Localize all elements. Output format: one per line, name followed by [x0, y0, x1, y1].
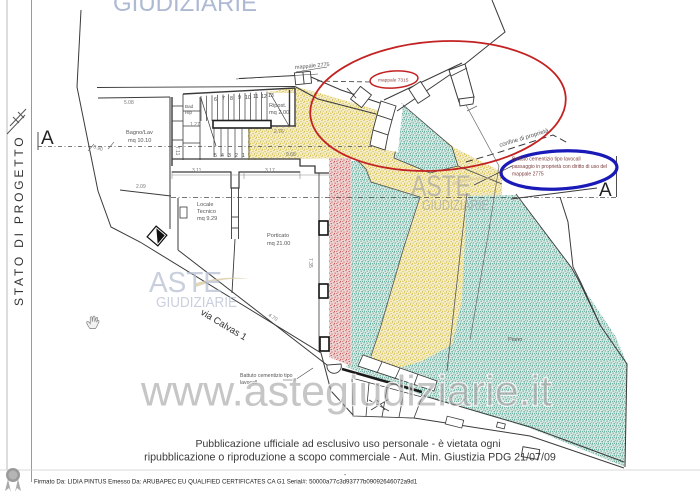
svg-text:Bagno/Lav: Bagno/Lav: [126, 130, 153, 136]
svg-text:Piano: Piano: [508, 337, 522, 343]
svg-text:1: 1: [242, 153, 245, 159]
svg-text:Rip: Rip: [185, 110, 192, 115]
svg-text:Firmato Da: LIDIA PINTUS Emess: Firmato Da: LIDIA PINTUS Emesso Da: ARUB…: [34, 479, 418, 486]
svg-text:mappale 2775: mappale 2775: [512, 172, 544, 178]
svg-text:3.17: 3.17: [265, 168, 275, 174]
svg-text:12: 12: [261, 94, 267, 100]
svg-text:Locale: Locale: [197, 202, 213, 208]
svg-text:9.68: 9.68: [286, 152, 296, 158]
svg-text:www.astegiudiziarie.it: www.astegiudiziarie.it: [140, 368, 552, 416]
svg-text:Bad: Bad: [185, 104, 194, 109]
svg-text:3.11: 3.11: [192, 168, 202, 174]
svg-text:A: A: [41, 128, 54, 149]
svg-text:2.09: 2.09: [136, 184, 146, 190]
svg-text:1.27: 1.27: [190, 122, 200, 128]
svg-text:8: 8: [230, 96, 233, 102]
svg-text:mq 21.00: mq 21.00: [267, 241, 290, 247]
svg-text:4: 4: [221, 153, 224, 159]
svg-text:STATO DI PROGETTO: STATO DI PROGETTO: [12, 135, 26, 306]
svg-text:2.76: 2.76: [274, 129, 284, 135]
svg-text:mq 2.00: mq 2.00: [269, 110, 289, 116]
svg-text:A: A: [599, 180, 612, 201]
svg-text:5.08: 5.08: [124, 100, 134, 106]
svg-text:ripubblicazione o riproduzione: ripubblicazione o riproduzione a scopo c…: [144, 452, 556, 464]
svg-text:7.35: 7.35: [307, 258, 313, 268]
svg-text:mappale 7315: mappale 7315: [378, 78, 409, 84]
svg-text:9: 9: [238, 95, 241, 101]
svg-text:mq 10.10: mq 10.10: [128, 138, 151, 144]
svg-text:13: 13: [268, 93, 274, 99]
svg-text:3: 3: [228, 153, 231, 159]
svg-text:passaggio in proprietà con dir: passaggio in proprietà con diritto di us…: [512, 164, 607, 170]
svg-text:10: 10: [245, 95, 251, 101]
svg-text:6: 6: [214, 97, 217, 103]
svg-text:7.11: 7.11: [174, 146, 180, 156]
svg-text:Tecnico: Tecnico: [197, 209, 216, 215]
svg-text:5: 5: [214, 153, 217, 159]
svg-text:Ripost.: Ripost.: [269, 103, 287, 109]
svg-text:2: 2: [235, 153, 238, 159]
svg-text:Porticato: Porticato: [267, 233, 289, 239]
svg-text:7: 7: [222, 96, 225, 102]
svg-text:11: 11: [253, 94, 258, 100]
svg-text:mq 9.29: mq 9.29: [197, 216, 217, 222]
svg-text:GIUDIZIARIE: GIUDIZIARIE: [156, 294, 237, 311]
svg-text:GIUDIZIARIE: GIUDIZIARIE: [113, 0, 257, 17]
svg-text:GIUDIZIARIE: GIUDIZIARIE: [422, 198, 489, 214]
svg-text:Pubblicazione ufficiale ad esc: Pubblicazione ufficiale ad esclusivo uso…: [195, 438, 500, 450]
svg-text:Battuto cementizio tipo lavoca: Battuto cementizio tipo lavocall: [512, 157, 581, 163]
